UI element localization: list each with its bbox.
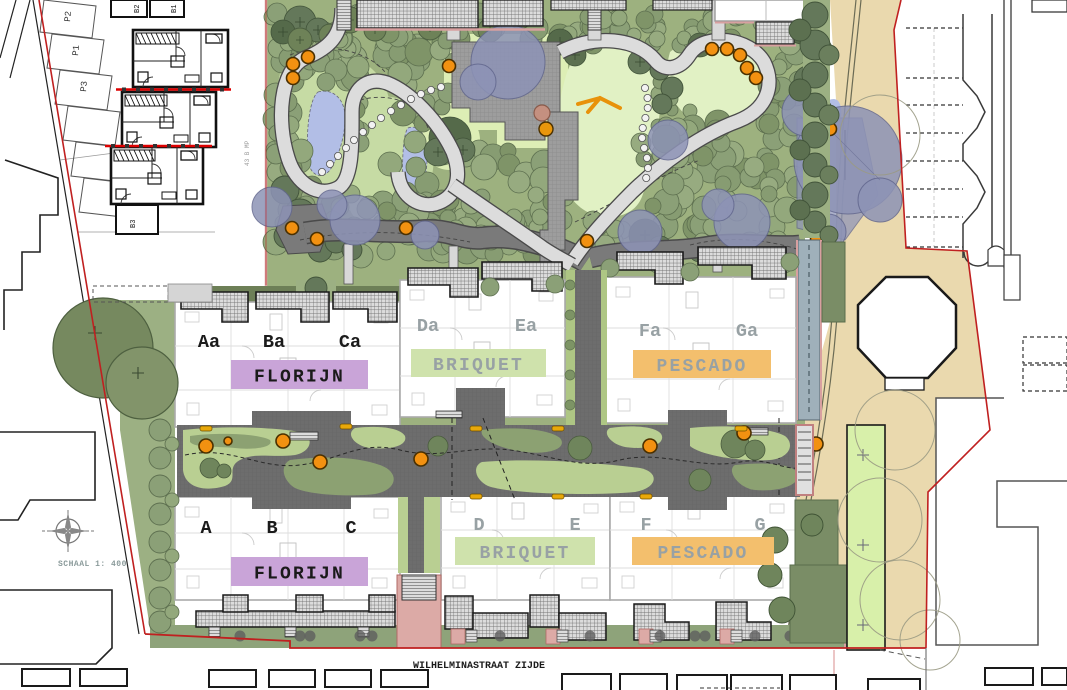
svg-text:Ba: Ba: [263, 332, 285, 353]
svg-text:C: C: [345, 518, 356, 539]
svg-text:FLORIJN: FLORIJN: [254, 368, 345, 388]
svg-text:E: E: [569, 515, 580, 536]
svg-text:F: F: [640, 515, 651, 536]
svg-text:Da: Da: [417, 316, 439, 337]
svg-text:SCHAAL 1: 400: SCHAAL 1: 400: [58, 560, 127, 569]
svg-text:B: B: [266, 518, 277, 539]
svg-text:Ca: Ca: [339, 332, 361, 353]
svg-text:A: A: [200, 518, 212, 539]
svg-text:D: D: [473, 515, 484, 536]
svg-text:BRIQUET: BRIQUET: [479, 544, 570, 564]
svg-text:G: G: [754, 515, 765, 536]
svg-text:P2: P2: [63, 11, 74, 23]
svg-text:B2: B2: [134, 5, 142, 13]
svg-text:Fa: Fa: [639, 321, 661, 342]
svg-text:P3: P3: [79, 81, 90, 93]
svg-text:P1: P1: [71, 45, 82, 57]
svg-text:PESCADO: PESCADO: [657, 544, 748, 564]
svg-text:B3: B3: [130, 220, 138, 228]
svg-text:43 B MP: 43 B MP: [244, 140, 251, 166]
svg-text:Ea: Ea: [515, 316, 537, 337]
svg-text:B1: B1: [171, 5, 179, 13]
svg-text:PESCADO: PESCADO: [656, 357, 747, 377]
svg-text:Aa: Aa: [198, 332, 220, 353]
svg-text:FLORIJN: FLORIJN: [254, 565, 345, 585]
svg-text:WILHELMINASTRAAT ZIJDE: WILHELMINASTRAAT ZIJDE: [413, 661, 545, 672]
svg-text:BRIQUET: BRIQUET: [433, 356, 524, 376]
svg-text:Ga: Ga: [736, 321, 758, 342]
